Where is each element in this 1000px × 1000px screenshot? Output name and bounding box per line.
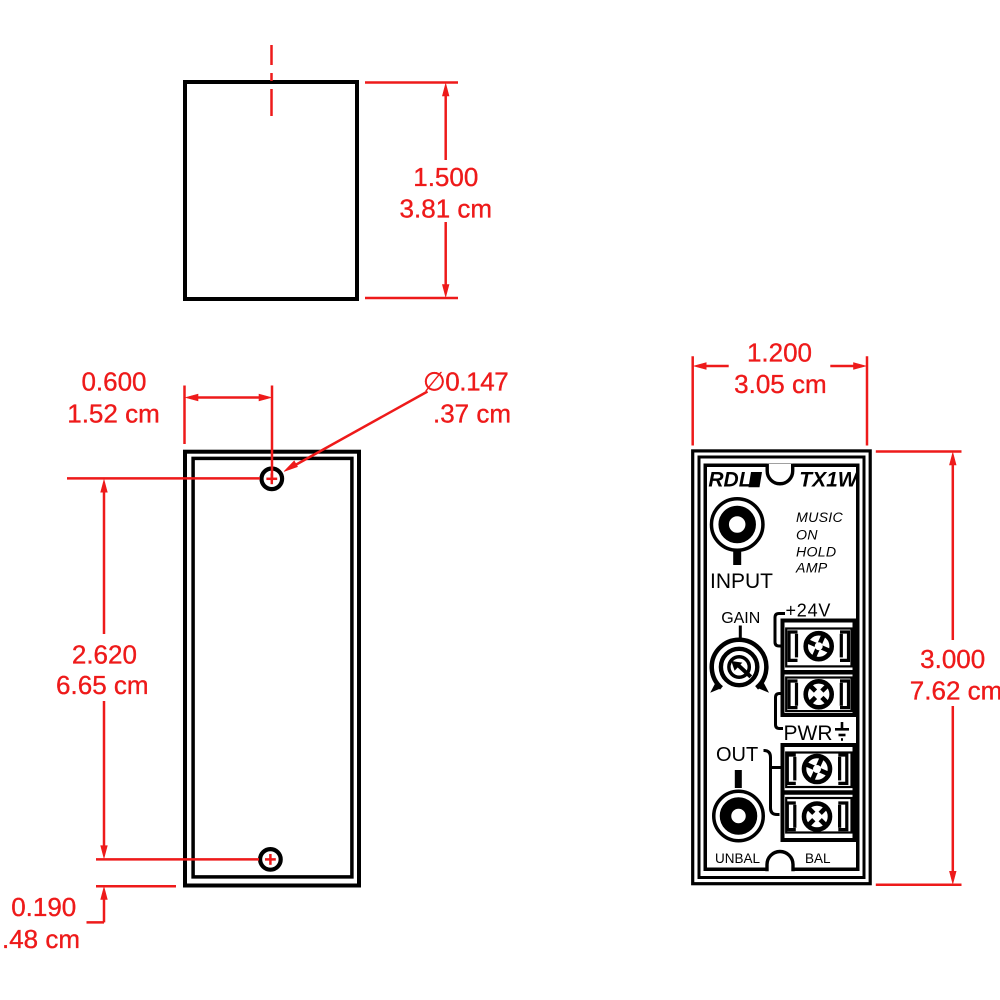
- svg-text:∅0.147: ∅0.147: [423, 367, 508, 397]
- svg-text:UNBAL: UNBAL: [715, 851, 761, 866]
- svg-text:1.52 cm: 1.52 cm: [67, 398, 160, 428]
- svg-text:7.62 cm: 7.62 cm: [910, 675, 1000, 705]
- svg-text:+24V: +24V: [786, 601, 832, 621]
- svg-text:0.600: 0.600: [81, 367, 146, 397]
- svg-text:AMP: AMP: [795, 560, 828, 576]
- svg-text:PWR: PWR: [784, 722, 833, 745]
- svg-text:3.000: 3.000: [920, 644, 985, 674]
- svg-text:3.05 cm: 3.05 cm: [734, 369, 827, 399]
- svg-text:RDL: RDL: [708, 469, 751, 492]
- svg-text:.48 cm: .48 cm: [2, 924, 80, 954]
- svg-text:6.65 cm: 6.65 cm: [56, 670, 149, 700]
- svg-text:.37 cm: .37 cm: [433, 398, 511, 428]
- svg-text:ON: ON: [796, 528, 818, 544]
- svg-text:INPUT: INPUT: [710, 570, 773, 593]
- svg-text:2.620: 2.620: [72, 639, 137, 669]
- svg-text:3.81 cm: 3.81 cm: [400, 193, 493, 223]
- svg-text:GAIN: GAIN: [721, 610, 760, 627]
- svg-text:TX1W: TX1W: [799, 469, 860, 492]
- svg-text:1.500: 1.500: [413, 162, 478, 192]
- svg-text:HOLD: HOLD: [796, 545, 836, 561]
- svg-text:OUT: OUT: [716, 744, 758, 766]
- svg-text:BAL: BAL: [805, 851, 831, 866]
- svg-text:1.200: 1.200: [747, 338, 812, 368]
- svg-text:0.190: 0.190: [11, 892, 76, 922]
- svg-text:MUSIC: MUSIC: [796, 510, 843, 526]
